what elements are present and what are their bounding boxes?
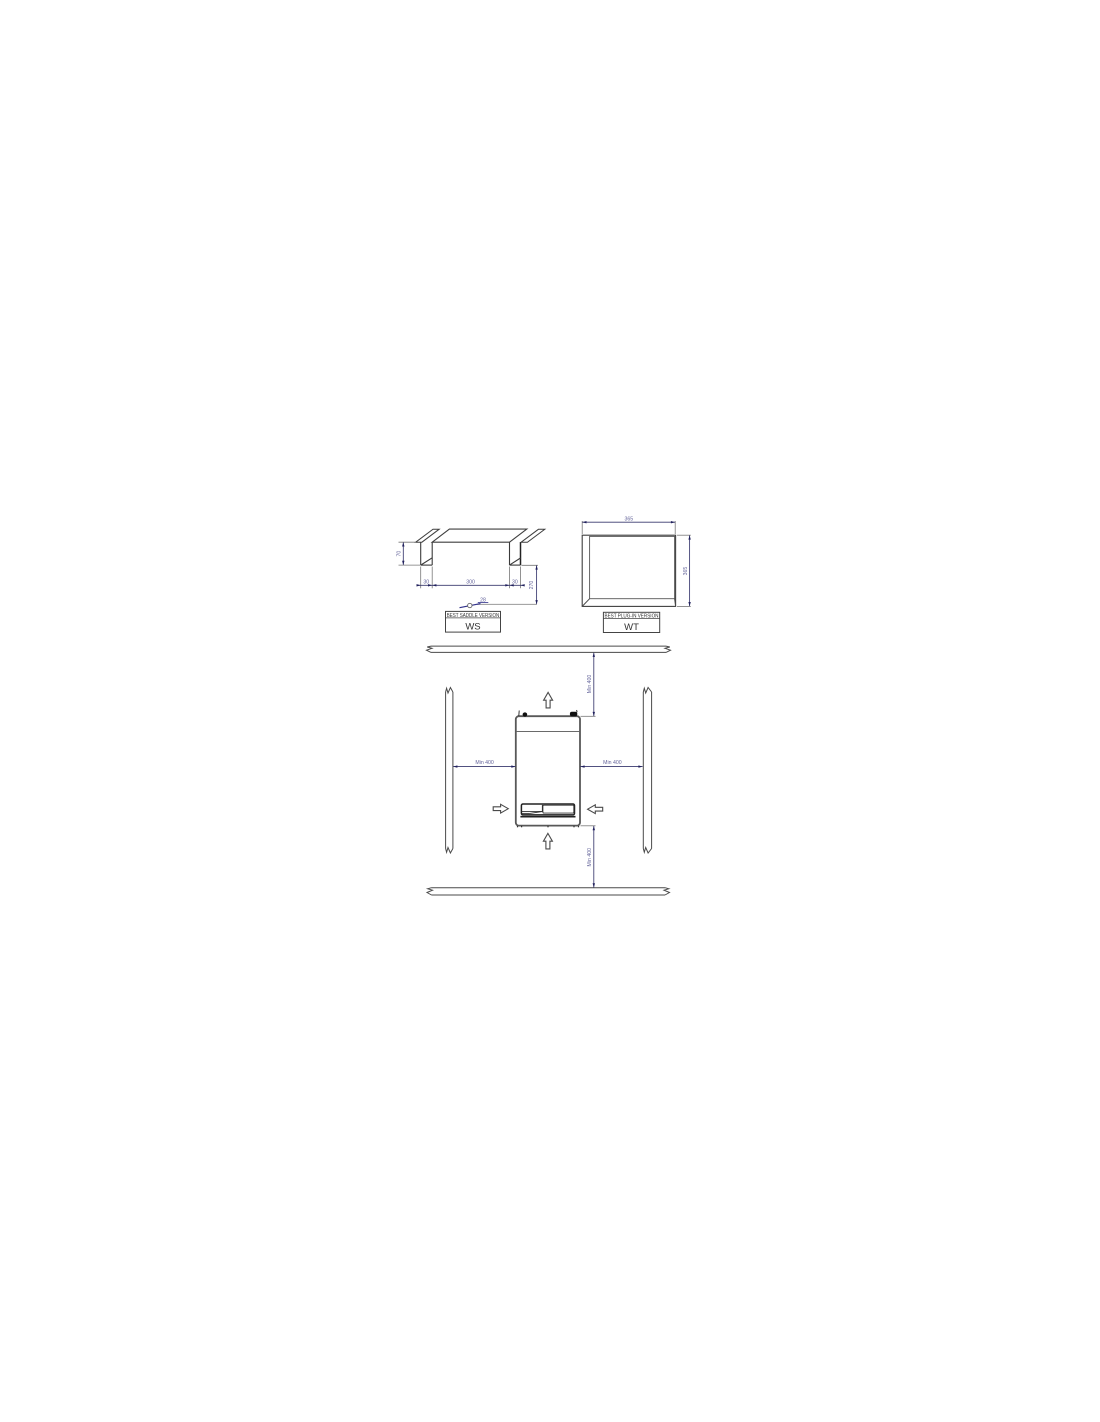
svg-text:30: 30 (423, 579, 429, 585)
svg-text:WT: WT (624, 622, 639, 633)
svg-text:30: 30 (512, 579, 518, 585)
svg-text:Min 400: Min 400 (603, 760, 622, 766)
svg-text:BEST SADDLE VERSION: BEST SADDLE VERSION (447, 613, 500, 619)
svg-text:Min 400: Min 400 (587, 848, 593, 867)
svg-text:365: 365 (683, 567, 689, 576)
svg-text:70: 70 (397, 551, 403, 557)
svg-text:365: 365 (624, 516, 633, 522)
svg-text:WS: WS (465, 621, 480, 632)
svg-text:BEST PLUG-IN VERSION: BEST PLUG-IN VERSION (605, 614, 659, 620)
svg-text:300: 300 (466, 579, 475, 585)
svg-text:270: 270 (529, 581, 535, 590)
svg-text:Min 400: Min 400 (587, 675, 593, 694)
svg-text:Min 400: Min 400 (475, 760, 494, 766)
